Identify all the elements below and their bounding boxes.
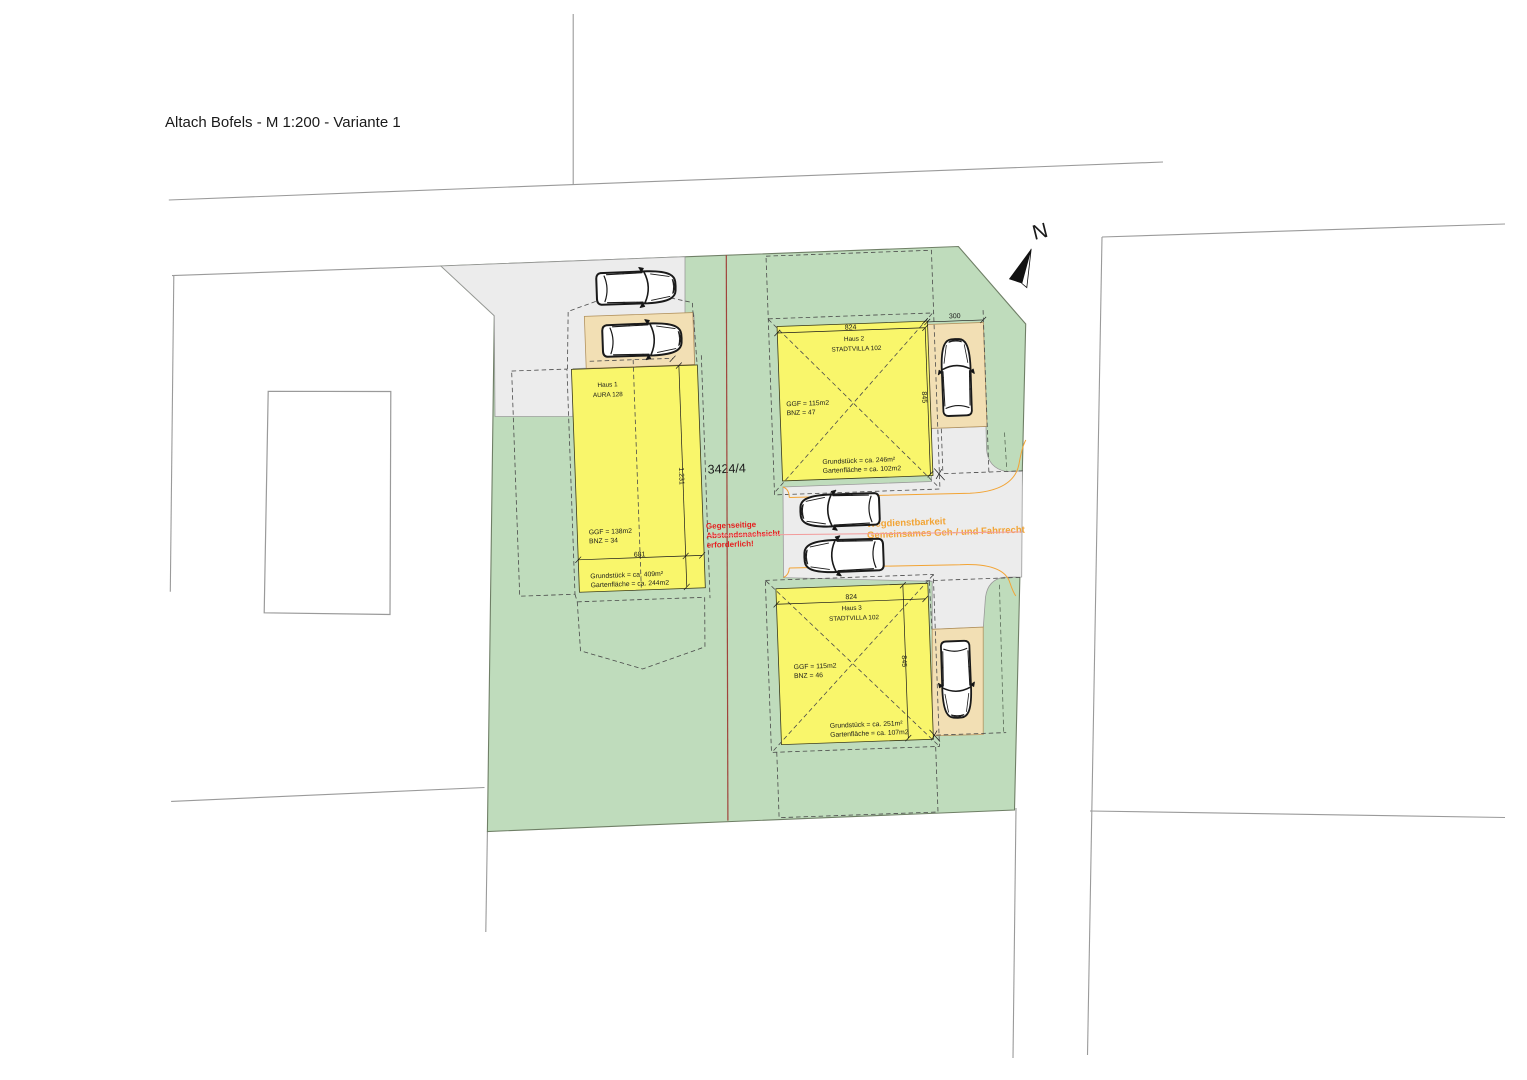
svg-text:BNZ = 34: BNZ = 34 [589, 537, 618, 545]
svg-text:845: 845 [920, 391, 927, 403]
svg-text:Haus 1: Haus 1 [597, 381, 618, 389]
svg-text:845: 845 [900, 655, 907, 667]
svg-text:1.231: 1.231 [677, 467, 685, 485]
svg-text:BNZ = 46: BNZ = 46 [794, 672, 823, 680]
svg-text:AURA 128: AURA 128 [593, 391, 624, 399]
svg-text:300: 300 [949, 313, 961, 320]
svg-text:Haus 3: Haus 3 [841, 605, 862, 613]
svg-text:824: 824 [845, 324, 857, 331]
svg-text:Altach Bofels - M 1:200 - Vari: Altach Bofels - M 1:200 - Variante 1 [165, 114, 401, 131]
svg-text:erforderlich!: erforderlich! [706, 539, 753, 550]
svg-text:681: 681 [634, 551, 646, 558]
svg-text:BNZ = 47: BNZ = 47 [787, 409, 816, 417]
svg-text:Haus 2: Haus 2 [844, 335, 865, 343]
svg-text:824: 824 [845, 594, 857, 601]
